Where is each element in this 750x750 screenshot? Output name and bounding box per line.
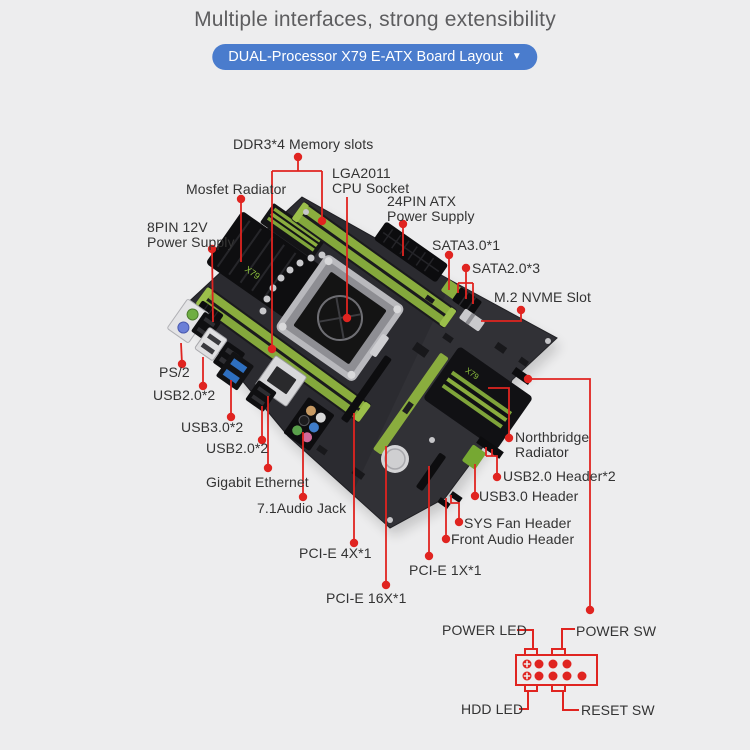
callout-line-pin8 bbox=[212, 249, 213, 322]
reset-sw-line bbox=[563, 691, 579, 710]
label-hdd-led: HDD LED bbox=[461, 702, 523, 717]
callout-sys-fan: SYS Fan Header bbox=[464, 516, 571, 531]
callout-pcie-16x: PCI-E 16X*1 bbox=[326, 591, 406, 606]
callout-24pin-atx: 24PIN ATX Power Supply bbox=[387, 194, 475, 224]
callout-pcie-4x: PCI-E 4X*1 bbox=[299, 546, 372, 561]
callout-line-sys-fan bbox=[451, 495, 459, 522]
callout-sata3: SATA3.0*1 bbox=[432, 238, 500, 253]
callout-gigabit-ethernet: Gigabit Ethernet bbox=[206, 475, 309, 490]
callout-front-audio: Front Audio Header bbox=[451, 532, 574, 547]
callout-line-usb2-header bbox=[486, 447, 497, 477]
callout-line-sata2 bbox=[458, 268, 473, 304]
callout-8pin-12v: 8PIN 12V Power Supply bbox=[147, 220, 235, 250]
callout-usb2-rear-bottom: USB2.0*2 bbox=[206, 441, 268, 456]
callout-sata2: SATA2.0*3 bbox=[472, 261, 540, 276]
front-panel-diagram bbox=[516, 629, 597, 710]
label-power-led: POWER LED bbox=[442, 623, 527, 638]
callout-pcie-1x: PCI-E 1X*1 bbox=[409, 563, 482, 578]
callout-line-northbridge bbox=[488, 388, 509, 438]
label-power-sw: POWER SW bbox=[576, 624, 656, 639]
callout-m2-nvme: M.2 NVME Slot bbox=[494, 290, 591, 305]
callout-usb3-header: USB3.0 Header bbox=[479, 489, 578, 504]
callout-usb2-header: USB2.0 Header*2 bbox=[503, 469, 616, 484]
callout-ps2: PS/2 bbox=[159, 365, 190, 380]
callout-line-m2 bbox=[481, 310, 521, 321]
front-panel-pins bbox=[523, 660, 587, 681]
callout-northbridge: Northbridge Radiator bbox=[515, 430, 589, 460]
callout-audio-jack: 7.1Audio Jack bbox=[257, 501, 346, 516]
callout-mosfet-radiator: Mosfet Radiator bbox=[186, 182, 286, 197]
callout-usb2-rear-top: USB2.0*2 bbox=[153, 388, 215, 403]
callout-memory-slots: DDR3*4 Memory slots bbox=[233, 137, 373, 152]
power-sw-line bbox=[562, 629, 575, 650]
product-diagram-page: Multiple interfaces, strong extensibilit… bbox=[0, 0, 750, 750]
callout-usb3-rear: USB3.0*2 bbox=[181, 420, 243, 435]
label-reset-sw: RESET SW bbox=[581, 703, 655, 718]
plus-pin-marks bbox=[524, 661, 530, 679]
callout-cpu-socket: LGA2011 CPU Socket bbox=[332, 166, 409, 196]
